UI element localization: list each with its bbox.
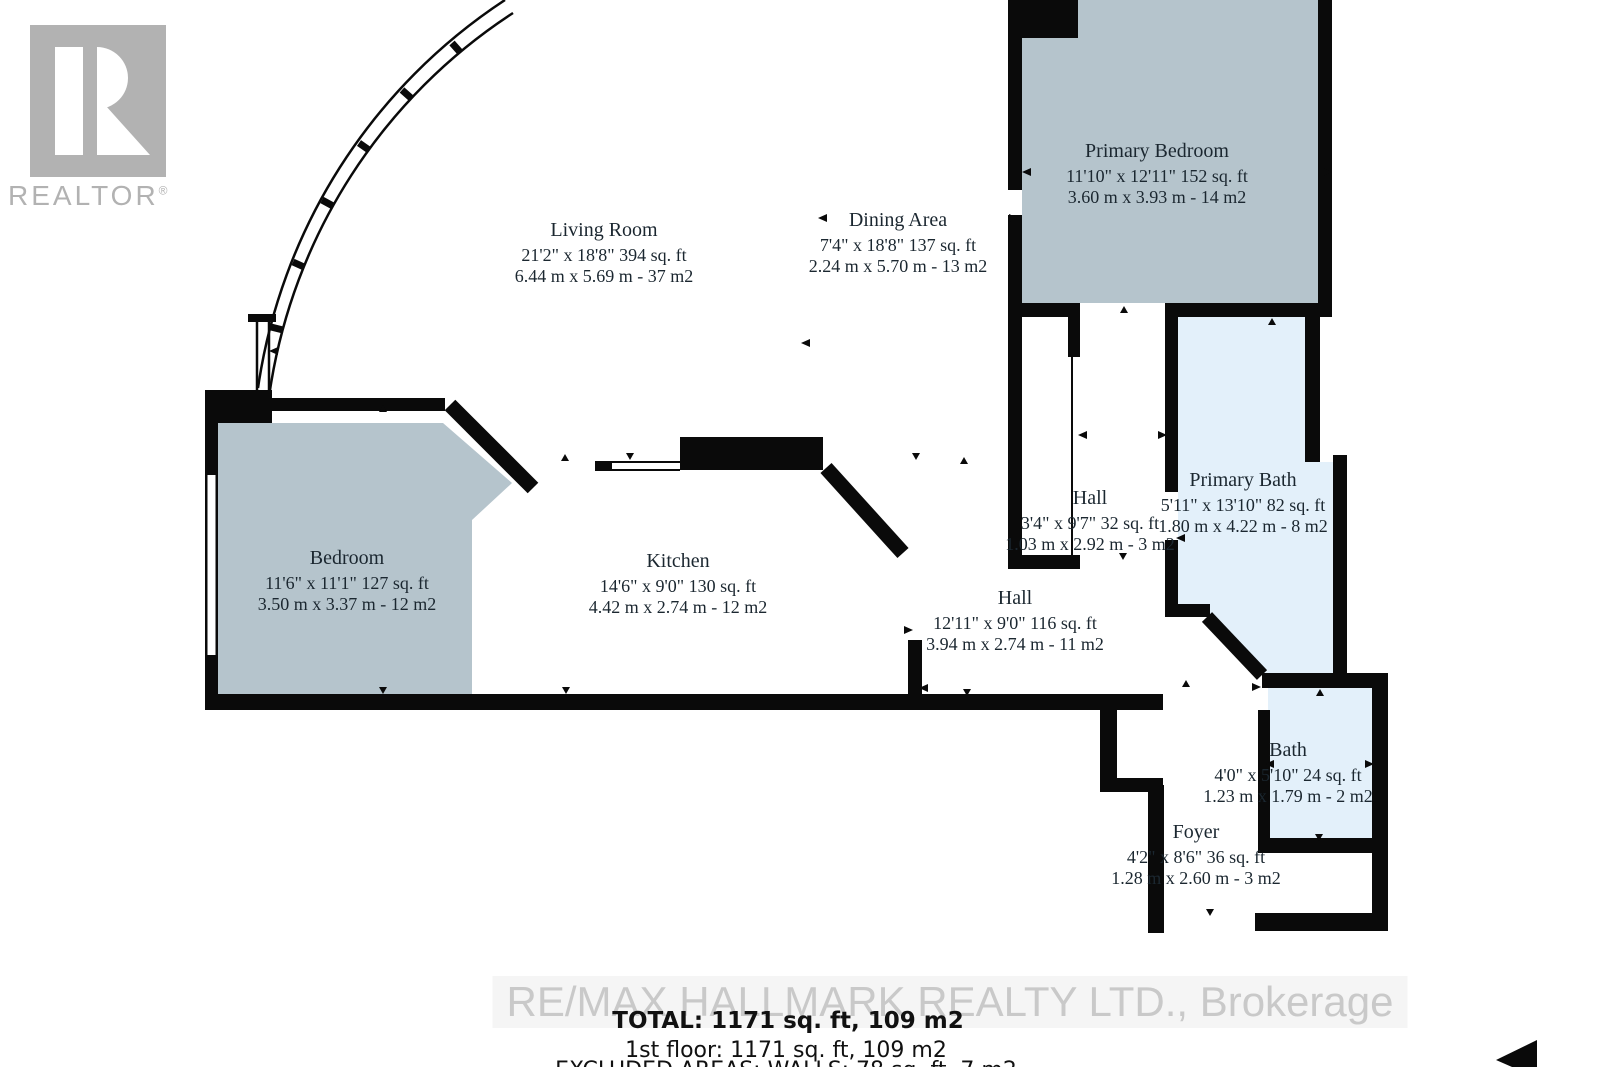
room-dimensions-imperial: 12'11" x 9'0" 116 sq. ft: [926, 613, 1104, 634]
room-name: Kitchen: [589, 550, 768, 573]
total-area-text: TOTAL: 1171 sq. ft, 109 m2: [612, 1008, 963, 1034]
room-dimensions-imperial: 4'2" x 8'6" 36 sq. ft: [1111, 847, 1281, 868]
room-label-foyer: Foyer 4'2" x 8'6" 36 sq. ft 1.28 m x 2.6…: [1111, 821, 1281, 889]
room-dimensions-imperial: 11'10" x 12'11" 152 sq. ft: [1066, 166, 1248, 187]
room-name: Primary Bedroom: [1066, 140, 1248, 163]
room-dimensions-metric: 1.80 m x 4.22 m - 8 m2: [1158, 516, 1328, 537]
room-dimensions-imperial: 3'4" x 9'7" 32 sq. ft: [1005, 513, 1175, 534]
floorplan-page: REALTOR® Living Room 21'2" x 18'8" 394 s…: [0, 0, 1600, 1067]
floorplan-canvas: [0, 0, 1600, 1067]
room-label-primary-bath: Primary Bath 5'11" x 13'10" 82 sq. ft 1.…: [1158, 469, 1328, 537]
room-name: Dining Area: [809, 209, 988, 232]
room-dimensions-metric: 3.50 m x 3.37 m - 12 m2: [258, 594, 437, 615]
room-name: Hall: [1005, 487, 1175, 510]
realtor-wordmark: REALTOR: [8, 180, 159, 211]
room-dimensions-metric: 1.03 m x 2.92 m - 3 m2: [1005, 534, 1175, 555]
excluded-areas-text: EXCLUDED AREAS: WALLS: 78 sq. ft, 7 m2: [555, 1058, 1017, 1067]
realtor-logo-icon: [30, 25, 166, 177]
room-fills: [218, 0, 1372, 838]
compass-north-arrow-icon: [1496, 1040, 1537, 1067]
room-label-hall-main: Hall 12'11" x 9'0" 116 sq. ft 3.94 m x 2…: [926, 587, 1104, 655]
registered-trademark: ®: [159, 184, 168, 198]
room-dimensions-metric: 4.42 m x 2.74 m - 12 m2: [589, 597, 768, 618]
room-label-primary-bedroom: Primary Bedroom 11'10" x 12'11" 152 sq. …: [1066, 140, 1248, 208]
room-name: Primary Bath: [1158, 469, 1328, 492]
room-dimensions-imperial: 21'2" x 18'8" 394 sq. ft: [515, 245, 694, 266]
room-dimensions-metric: 1.23 m x 1.79 m - 2 m2: [1203, 786, 1373, 807]
room-dimensions-metric: 1.28 m x 2.60 m - 3 m2: [1111, 868, 1281, 889]
room-label-hall-upper: Hall 3'4" x 9'7" 32 sq. ft 1.03 m x 2.92…: [1005, 487, 1175, 555]
room-name: Bedroom: [258, 547, 437, 570]
room-label-dining-area: Dining Area 7'4" x 18'8" 137 sq. ft 2.24…: [809, 209, 988, 277]
room-label-kitchen: Kitchen 14'6" x 9'0" 130 sq. ft 4.42 m x…: [589, 550, 768, 618]
room-name: Living Room: [515, 219, 694, 242]
curved-window-wall: [248, 0, 513, 390]
room-name: Foyer: [1111, 821, 1281, 844]
room-dimensions-metric: 2.24 m x 5.70 m - 13 m2: [809, 256, 988, 277]
room-label-bedroom: Bedroom 11'6" x 11'1" 127 sq. ft 3.50 m …: [258, 547, 437, 615]
room-label-living-room: Living Room 21'2" x 18'8" 394 sq. ft 6.4…: [515, 219, 694, 287]
room-dimensions-metric: 3.60 m x 3.93 m - 14 m2: [1066, 187, 1248, 208]
realtor-logo-text: REALTOR®: [8, 180, 198, 212]
room-dimensions-imperial: 11'6" x 11'1" 127 sq. ft: [258, 573, 437, 594]
room-dimensions-metric: 6.44 m x 5.69 m - 37 m2: [515, 266, 694, 287]
room-dimensions-imperial: 4'0" x 5'10" 24 sq. ft: [1203, 765, 1373, 786]
room-dimensions-imperial: 5'11" x 13'10" 82 sq. ft: [1158, 495, 1328, 516]
room-label-bath: Bath 4'0" x 5'10" 24 sq. ft 1.23 m x 1.7…: [1203, 739, 1373, 807]
room-dimensions-imperial: 14'6" x 9'0" 130 sq. ft: [589, 576, 768, 597]
room-name: Bath: [1203, 739, 1373, 762]
room-dimensions-imperial: 7'4" x 18'8" 137 sq. ft: [809, 235, 988, 256]
room-name: Hall: [926, 587, 1104, 610]
room-dimensions-metric: 3.94 m x 2.74 m - 11 m2: [926, 634, 1104, 655]
